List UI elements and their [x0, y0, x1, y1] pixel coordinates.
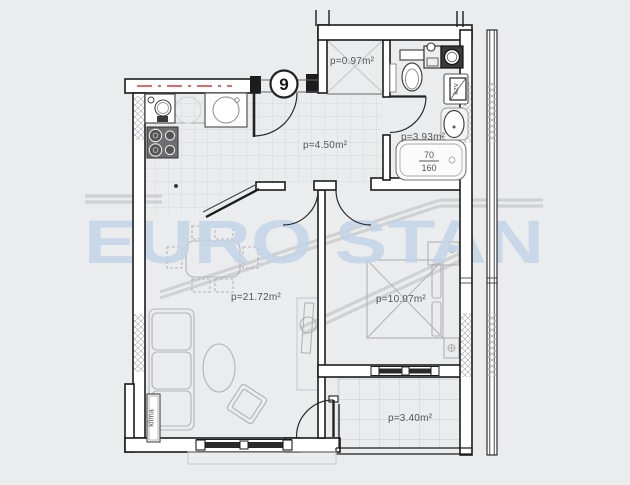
entrance-jamb-right	[306, 74, 318, 93]
apartment-number-badge: 9	[271, 71, 298, 98]
bottom-wall-right	[285, 438, 340, 452]
divider-cap-wall	[314, 181, 336, 190]
entrance-jamb-left	[250, 76, 261, 93]
left-wall	[133, 93, 145, 438]
bathroom-left-wall-lower	[383, 135, 390, 180]
boiler-label: kzv	[451, 83, 460, 95]
floor-plan-page: EURO STAN	[0, 0, 630, 485]
room-area-label-hallway: p=4.50m²	[303, 140, 348, 151]
top-wall	[318, 25, 472, 40]
kitchen-sink-right	[205, 93, 247, 127]
stove	[147, 127, 178, 158]
bathroom-left-wall-upper	[383, 40, 390, 97]
room-area-label-balcony: p=3.40m²	[388, 413, 433, 424]
hallway-bottom-wall	[256, 182, 285, 190]
bathtub: 70 160	[396, 140, 466, 180]
room-area-label-living-room: p=21.72m²	[231, 292, 281, 303]
air-conditioner-unit: klima	[147, 394, 161, 442]
room-area-label-closet: p=0.97m²	[330, 56, 375, 67]
room-area-label-bathroom: p=3.93m²	[401, 132, 446, 143]
floor-drain	[174, 184, 178, 188]
kitchen-sink-left	[145, 94, 175, 123]
bathtub-width-label: 70	[424, 150, 434, 160]
bathtub-length-label: 160	[421, 163, 436, 173]
floor-plan-drawing: EURO STAN	[0, 0, 630, 485]
boiler-unit: kzv	[444, 74, 468, 104]
bedroom-window	[371, 366, 439, 376]
apartment-number: 9	[279, 75, 288, 94]
room-area-label-bedroom: p=10.07m²	[376, 294, 426, 305]
watermark-text: EURO STAN	[84, 208, 544, 276]
washing-machine	[424, 43, 463, 68]
air-conditioner-label: klima	[147, 408, 156, 426]
living-room-window	[196, 439, 292, 452]
bathroom-shelf	[390, 64, 396, 92]
